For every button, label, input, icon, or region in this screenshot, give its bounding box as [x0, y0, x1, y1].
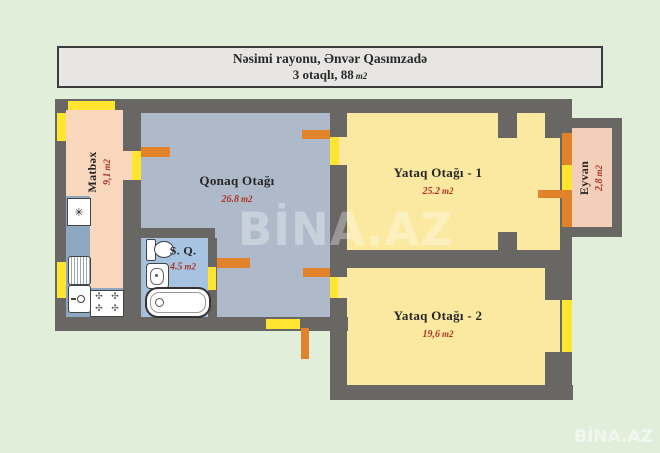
bedroom-2-name: Yataq Otağı - 2	[394, 308, 483, 324]
watermark-center: BİNA.AZ	[238, 203, 454, 256]
balcony-label: Eyvan 2,8m2	[577, 161, 605, 195]
burner-icon: ✣	[111, 293, 119, 302]
bedroom-1-label: Yataq Otağı - 1 25.2m2	[394, 165, 483, 197]
door-gap-bedroom1	[339, 137, 347, 165]
watermark-corner: BİNA.AZ	[574, 427, 653, 447]
wall-bathroom-top	[141, 228, 215, 238]
kitchen-area: 9,1m2	[102, 159, 113, 185]
balcony-area: 2,8m2	[594, 165, 605, 191]
door-balcony-leaf	[538, 190, 572, 198]
burner-icon: ✣	[111, 305, 119, 314]
wall-top-main	[123, 99, 572, 113]
door-bedroom2	[303, 268, 330, 277]
wall-bedroom2-right-pier-bottom	[545, 352, 572, 385]
window-kitchen-left-lower	[57, 262, 66, 298]
stove-burners: ✣ ✣ ✣ ✣	[91, 291, 123, 316]
living-room-label: Qonaq Otağı 26.8m2	[199, 173, 274, 205]
window-balcony-middle	[562, 165, 572, 192]
title-address: Nəsimi rayonu, Ənvər Qasımzadə	[233, 51, 427, 66]
bedroom-1-area: 25.2m2	[422, 186, 453, 197]
kitchen-sink-tap	[71, 298, 76, 300]
burner-icon: ✣	[95, 293, 103, 302]
floor-plan-image: Nəsimi rayonu, Ənvər Qasımzadə 3 otaqlı,…	[0, 0, 660, 453]
door-kitchen-living	[141, 147, 170, 157]
bathtub-icon	[145, 287, 211, 318]
wall-notch-bedroom1-bottom	[498, 232, 517, 250]
kitchen-sink-basin	[77, 295, 85, 303]
kitchen-name: Matbəx	[85, 151, 100, 192]
wall-balcony-right	[612, 118, 622, 237]
kitchen-sink-icon	[68, 285, 91, 313]
door-entrance-leaf	[301, 328, 309, 359]
doorjamb-bedroom1	[330, 137, 339, 165]
bathtub-drain	[155, 298, 164, 307]
wall-notch-bedroom1-top-left	[498, 113, 517, 138]
title-unit: m2	[356, 71, 368, 81]
door-gap-kitchen	[123, 151, 132, 180]
wall-balcony-bottom	[560, 227, 622, 237]
wall-bedroom2-right-pier-top	[545, 268, 572, 300]
door-bedroom1	[302, 130, 330, 139]
window-kitchen-top	[68, 101, 115, 110]
stove-icon: ✣ ✣ ✣ ✣	[90, 290, 124, 317]
bedroom-2-label: Yataq Otağı - 2 19,6m2	[394, 308, 483, 340]
bedroom-2-area: 19,6m2	[422, 329, 453, 340]
door-gap-bedroom2	[338, 277, 347, 298]
wall-notch-bedroom1-top-right	[545, 113, 560, 138]
doorjamb-bathroom	[208, 267, 216, 290]
title-box: Nəsimi rayonu, Ənvər Qasımzadə 3 otaqlı,…	[57, 46, 603, 88]
doorjamb-bedroom2	[330, 277, 338, 298]
burner-icon: ✣	[95, 305, 103, 314]
wall-bottom-right	[330, 385, 573, 400]
door-bathroom	[217, 258, 250, 268]
bedroom-1-name: Yataq Otağı - 1	[394, 165, 483, 181]
bathroom-area: 4.5m2	[170, 262, 196, 273]
wall-kitchen-living	[123, 99, 141, 317]
appliance-symbol: ✳	[74, 206, 83, 219]
bathroom-name: S. Q.	[170, 244, 197, 259]
balcony-name: Eyvan	[577, 161, 592, 195]
title-rooms-size: 3 otaqlı, 88m2	[293, 67, 368, 84]
bathroom-label: S. Q. 4.5m2	[170, 244, 197, 273]
fridge-icon	[68, 256, 91, 285]
bathroom-sink-icon	[146, 263, 169, 289]
living-room-name: Qonaq Otağı	[199, 173, 274, 189]
window-kitchen-left-upper	[57, 113, 66, 141]
door-balcony-frame-top	[562, 133, 572, 165]
appliance-icon: ✳	[67, 198, 91, 226]
window-bedroom2-right	[562, 300, 572, 352]
doorjamb-kitchen	[132, 151, 141, 180]
entrance-threshold	[266, 319, 300, 329]
kitchen-label: Matbəx 9,1m2	[85, 151, 113, 192]
